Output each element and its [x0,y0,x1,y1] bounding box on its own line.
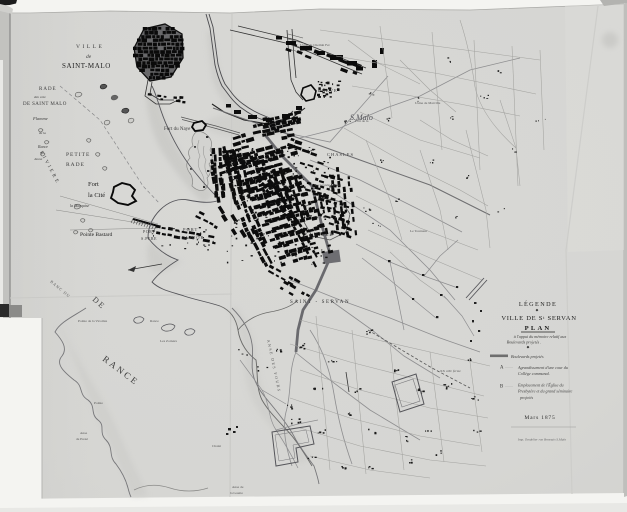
svg-text:Le Tourneur: Le Tourneur [410,229,428,233]
svg-text:Anse: Anse [80,431,88,435]
svg-text:SAINT-MALO: SAINT-MALO [62,62,111,70]
svg-text:PORT: PORT [183,227,198,232]
svg-text:Fort: Fort [88,181,99,188]
svg-text:la Cité: la Cité [88,192,105,199]
svg-text:Fort de la: Fort de la [355,119,369,123]
svg-text:Mars 1875: Mars 1875 [524,415,555,421]
svg-text:Pointe de la Vicomte: Pointe de la Vicomte [78,319,108,323]
svg-text:la Goutte: la Goutte [230,491,243,495]
svg-text:de: de [86,54,92,60]
svg-text:Pointe Bastard: Pointe Bastard [80,232,112,238]
svg-text:LÉGENDE: LÉGENDE [519,300,557,308]
svg-text:Usine de Marville: Usine de Marville [415,101,441,105]
svg-text:PETITE: PETITE [66,152,90,158]
svg-text:Les Zorieux: Les Zorieux [160,339,177,343]
svg-text:Fort du Naye: Fort du Naye [164,127,191,132]
svg-text:à l'appui du mémoire relatif a: à l'appui du mémoire relatif aux [514,334,567,339]
svg-text:Emplacement de l'Église du: Emplacement de l'Église du [517,383,564,388]
svg-text:Imp. Tondelier rue Brossais S.: Imp. Tondelier rue Brossais S.Malo [517,438,566,442]
svg-text:Usine de Chemin Fer: Usine de Chemin Fer [300,43,331,47]
svg-text:Presbytère et du grand séminai: Presbytère et du grand séminaire [517,389,573,394]
svg-text:B: B [500,385,503,390]
svg-text:RADE: RADE [39,87,57,92]
svg-text:RADE: RADE [66,162,85,168]
svg-text:Boulevards projetés .: Boulevards projetés . [507,340,542,345]
svg-text:S.PERE: S.PERE [141,236,157,241]
svg-text:La Grande Riviere: La Grande Riviere [315,183,341,187]
svg-text:Chalet: Chalet [212,444,221,448]
svg-text:CHASLES: CHASLES [327,152,354,157]
svg-text:projetés: projetés [519,395,533,400]
svg-text:Rance: Rance [150,319,159,323]
svg-text:........: ........ [505,364,513,369]
svg-text:Collège communal.: Collège communal. [518,371,550,376]
svg-text:den cote: den cote [34,95,46,99]
svg-text:VILLE: VILLE [76,44,104,50]
svg-text:SOLIDOR: SOLIDOR [178,235,205,240]
svg-text:la Marquise: la Marquise [70,203,90,208]
svg-text:de la: de la [39,131,46,135]
svg-text:VILLE: VILLE [314,233,333,238]
svg-text:Agrandissement d'une cour du: Agrandissement d'une cour du [517,365,568,370]
svg-text:de Prezé: de Prezé [76,437,88,441]
svg-text:Boulevards projetés: Boulevards projetés [511,354,544,359]
svg-text:SAINT - SERVAN: SAINT - SERVAN [290,300,350,305]
svg-text:XX ville ferme: XX ville ferme [440,369,461,373]
svg-text:Anse de: Anse de [232,485,244,489]
svg-text:Rance: Rance [37,144,48,149]
svg-text:DE SAINT MALO: DE SAINT MALO [23,102,67,107]
svg-text:........: ........ [505,383,513,388]
svg-text:BREVE: BREVE [318,88,338,93]
svg-text:Flamme: Flamme [32,116,48,121]
svg-text:A: A [500,366,504,371]
svg-text:VILLE DE St SERVAN: VILLE DE St SERVAN [501,315,576,322]
svg-text:PORT: PORT [143,229,155,234]
svg-text:PLAN: PLAN [525,325,552,332]
svg-text:Pointe: Pointe [94,401,103,405]
